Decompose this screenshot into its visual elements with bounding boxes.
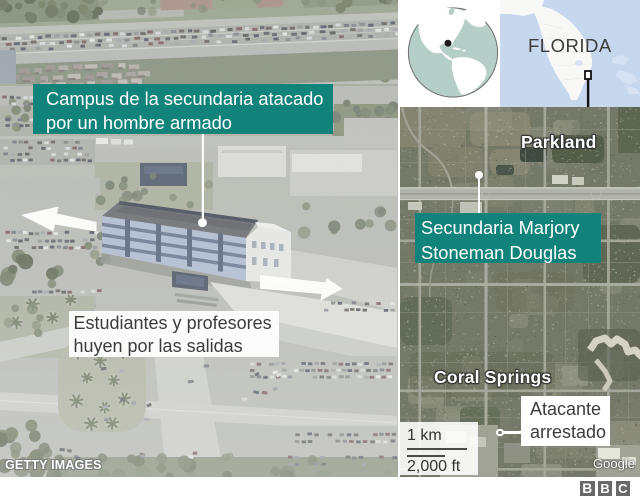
svg-text:FLORIDA: FLORIDA — [528, 35, 612, 56]
